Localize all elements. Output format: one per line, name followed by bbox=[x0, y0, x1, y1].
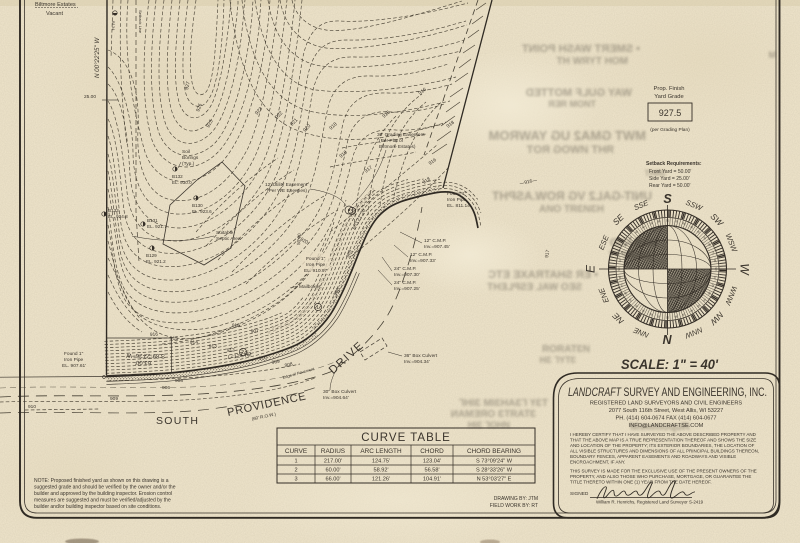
svg-text:Inv.=904.34': Inv.=904.34' bbox=[404, 359, 430, 365]
svg-text:Yard Grade: Yard Grade bbox=[654, 94, 684, 100]
svg-text:Found 1": Found 1" bbox=[306, 256, 326, 262]
svg-text:THAT THE ABOVE MAP IS A TRUE R: THAT THE ABOVE MAP IS A TRUE REPRESENTAT… bbox=[570, 438, 756, 443]
svg-text:B133: B133 bbox=[108, 208, 119, 213]
svg-text:Biltmore Estates: Biltmore Estates bbox=[35, 2, 76, 8]
svg-text:S 28°33'26" W: S 28°33'26" W bbox=[476, 468, 513, 474]
svg-text:EL. 907.61': EL. 907.61' bbox=[62, 363, 86, 369]
svg-text:Iron Pipe: Iron Pipe bbox=[64, 357, 84, 363]
svg-text:CHORD: CHORD bbox=[420, 448, 444, 455]
svg-text:William R. Henrichs, Registere: William R. Henrichs, Registered Land Sur… bbox=[596, 500, 704, 505]
svg-text:124.75': 124.75' bbox=[372, 459, 390, 465]
svg-text:909: 909 bbox=[110, 396, 118, 402]
svg-text:916: 916 bbox=[150, 332, 159, 338]
svg-text:BOUNDARY FENCES, APPARENT EASE: BOUNDARY FENCES, APPARENT EASEMENTS AND … bbox=[570, 454, 736, 459]
svg-text:THIS SURVEY IS MADE FOR THE EX: THIS SURVEY IS MADE FOR THE EXCLUSIVE US… bbox=[570, 469, 757, 474]
svg-text:EL. 930.0: EL. 930.0 bbox=[172, 180, 192, 185]
svg-text:Mailboxes: Mailboxes bbox=[299, 284, 321, 290]
svg-text:Found 1": Found 1" bbox=[64, 351, 84, 357]
svg-text:INFO@LANDCRAFTSE.COM: INFO@LANDCRAFTSE.COM bbox=[629, 423, 704, 429]
svg-text:N 00°22'25" W: N 00°22'25" W bbox=[94, 37, 101, 78]
svg-text:56.58': 56.58' bbox=[424, 468, 439, 474]
svg-text:EL. 910.97': EL. 910.97' bbox=[304, 268, 328, 274]
svg-text:Soil: Soil bbox=[182, 149, 190, 155]
svg-text:Setback Line: Setback Line bbox=[138, 10, 143, 34]
svg-text:30" Box Culvert: 30" Box Culvert bbox=[323, 389, 357, 395]
svg-text:12' Utility Easement: 12' Utility Easement bbox=[265, 182, 308, 188]
svg-text:1: 1 bbox=[316, 305, 319, 311]
svg-text:25.00: 25.00 bbox=[84, 94, 96, 100]
svg-text:Inv.=907.25': Inv.=907.25' bbox=[394, 286, 420, 292]
svg-text:908: 908 bbox=[175, 378, 183, 384]
svg-text:(per Grading Plan): (per Grading Plan) bbox=[650, 127, 690, 133]
svg-text:B131: B131 bbox=[147, 218, 158, 223]
svg-text:12" C.M.P.: 12" C.M.P. bbox=[424, 238, 446, 244]
svg-text:ARC LENGTH: ARC LENGTH bbox=[360, 448, 402, 455]
svg-text:B134: B134 bbox=[111, 21, 116, 31]
svg-text:• ER SHATRAXE ETC: • ER SHATRAXE ETC bbox=[488, 269, 598, 281]
svg-text:builder and/or building inspec: builder and/or building inspector based … bbox=[34, 504, 161, 510]
svg-text:(Typ.): (Typ.) bbox=[182, 161, 195, 167]
svg-text:NOTE: Proposed finished yard a: NOTE: Proposed finished yard as shown on… bbox=[34, 478, 169, 484]
svg-text:1: 1 bbox=[294, 459, 297, 465]
svg-text:907: 907 bbox=[251, 328, 260, 335]
svg-text:(Per Plat of: (Per Plat of bbox=[379, 138, 404, 144]
svg-text:Septic Area: Septic Area bbox=[216, 236, 241, 242]
svg-text:I HEREBY CERTIFY THAT I HAVE S: I HEREBY CERTIFY THAT I HAVE SURVEYED TH… bbox=[570, 432, 757, 437]
svg-text:EL. 811.14': EL. 811.14' bbox=[447, 203, 471, 209]
svg-text:CURVE: CURVE bbox=[285, 448, 307, 455]
svg-text:FIELD WORK BY: RT: FIELD WORK BY: RT bbox=[490, 503, 538, 509]
svg-text:104.91': 104.91' bbox=[423, 477, 441, 483]
svg-text:Vacant: Vacant bbox=[46, 11, 63, 17]
svg-text:12" C.M.P.: 12" C.M.P. bbox=[410, 252, 432, 258]
svg-text:PROPERTY, AND ALSO THOSE WHO P: PROPERTY, AND ALSO THOSE WHO PURCHASE, M… bbox=[570, 474, 751, 479]
svg-text:builder and approved by the bu: builder and approved by the building ins… bbox=[34, 491, 172, 497]
svg-text:EL. 921.7: EL. 921.7 bbox=[147, 224, 167, 229]
svg-text:CHORD BEARING: CHORD BEARING bbox=[467, 448, 521, 455]
svg-text:B130: B130 bbox=[192, 203, 203, 208]
svg-text:Inv.=907.33': Inv.=907.33' bbox=[410, 258, 436, 264]
svg-text:66.00': 66.00' bbox=[325, 477, 340, 483]
svg-text:ENCROACHMENT, IF ANY.: ENCROACHMENT, IF ANY. bbox=[570, 460, 625, 465]
svg-text:Found 1": Found 1" bbox=[447, 191, 467, 197]
svg-text:ЗТYГ ЗН: ЗТYГ ЗН bbox=[539, 355, 576, 365]
svg-text:2: 2 bbox=[294, 468, 297, 474]
svg-text:S 89°22'26" W: S 89°22'26" W bbox=[126, 352, 165, 359]
svg-text:B129: B129 bbox=[146, 253, 157, 258]
svg-text:Inv.=904.64': Inv.=904.64' bbox=[323, 395, 349, 401]
svg-text:SEO WAL ESPLEHT: SEO WAL ESPLEHT bbox=[487, 282, 582, 293]
svg-text:Inv.=907.45': Inv.=907.45' bbox=[424, 244, 450, 250]
svg-text:M: M bbox=[769, 50, 777, 60]
svg-text:916: 916 bbox=[232, 322, 241, 329]
svg-text:S 73°09'24" W: S 73°09'24" W bbox=[476, 459, 513, 465]
svg-text:SCALE: 1" = 40': SCALE: 1" = 40' bbox=[621, 356, 719, 372]
svg-text:EL. 921.2: EL. 921.2 bbox=[146, 259, 166, 264]
svg-text:WAY GULF MOTTED: WAY GULF MOTTED bbox=[526, 87, 632, 99]
svg-text:63.00': 63.00' bbox=[135, 359, 151, 365]
svg-text:Inv.=907.30': Inv.=907.30' bbox=[394, 272, 420, 278]
svg-text:217.00': 217.00' bbox=[324, 459, 342, 465]
svg-text:Biltmore Estates): Biltmore Estates) bbox=[379, 144, 416, 150]
svg-text:Suitable: Suitable bbox=[216, 230, 234, 236]
svg-text:915: 915 bbox=[170, 336, 179, 342]
svg-text:Iron Pipe: Iron Pipe bbox=[306, 262, 326, 268]
svg-text:3: 3 bbox=[350, 209, 353, 215]
svg-text:TИOM ЯER: TИOM ЯER bbox=[548, 99, 596, 109]
svg-text:ЯHT ИWOG ROТ: ЯHT ИWOG ROТ bbox=[526, 144, 614, 156]
svg-text:123.04': 123.04' bbox=[423, 459, 441, 465]
svg-text:ИЗТАЯOЯ: ИЗТАЯOЯ bbox=[542, 344, 590, 355]
svg-text:ТЗҮ ГЗАНЗІМ ЗІНГ: ТЗҮ ГЗАНЗІМ ЗІНГ bbox=[458, 398, 548, 409]
svg-text:927.5: 927.5 bbox=[659, 108, 682, 118]
svg-text:910: 910 bbox=[28, 404, 36, 410]
svg-text:W: W bbox=[738, 263, 752, 276]
svg-text:2077 South 116th Street, West: 2077 South 116th Street, West Allis, WI … bbox=[609, 408, 724, 414]
svg-text:EL. 923.6: EL. 923.6 bbox=[192, 209, 212, 214]
svg-text:SOUTH: SOUTH bbox=[156, 415, 199, 427]
svg-text:MOH TYRW HT: MOH TYRW HT bbox=[557, 56, 628, 67]
svg-text:Borings: Borings bbox=[182, 155, 199, 161]
svg-text:121.26': 121.26' bbox=[372, 477, 390, 483]
svg-text:Iron Pipe: Iron Pipe bbox=[447, 197, 467, 203]
svg-text:MWT GMA2 UG YAWROM: MWT GMA2 UG YAWROM bbox=[489, 128, 646, 143]
svg-text:• SMERT WASH POINT: • SMERT WASH POINT bbox=[522, 43, 640, 55]
svg-text:30' Grading Easement: 30' Grading Easement bbox=[377, 132, 425, 138]
svg-text:36" Box Culvert: 36" Box Culvert bbox=[404, 353, 438, 359]
svg-text:AND LOCATION OF THE PROPERTY;: AND LOCATION OF THE PROPERTY; ITS EXTERI… bbox=[570, 443, 755, 448]
svg-text:Side Yard = 25.00': Side Yard = 25.00' bbox=[649, 176, 690, 182]
svg-text:PH. (414) 604-0674 FAX (414): PH. (414) 604-0674 FAX (414) 604-0677 bbox=[615, 416, 716, 422]
svg-text:Prop. Finish: Prop. Finish bbox=[654, 86, 685, 92]
svg-text:3: 3 bbox=[294, 477, 297, 483]
svg-text:REGISTERED LAND SURVEYORS AND: REGISTERED LAND SURVEYORS AND CIVIL ENGI… bbox=[590, 401, 743, 407]
svg-text:58.92': 58.92' bbox=[373, 468, 388, 474]
svg-text:50.00: 50.00 bbox=[296, 233, 302, 245]
svg-text:SIGNED: SIGNED bbox=[570, 491, 589, 497]
svg-text:24" C.M.P.: 24" C.M.P. bbox=[394, 280, 416, 286]
svg-text:B132: B132 bbox=[172, 174, 183, 179]
svg-text:suggested grade and should be: suggested grade and should be verified b… bbox=[34, 485, 176, 491]
svg-text:Setback Requirements:: Setback Requirements: bbox=[646, 161, 702, 167]
svg-text:RADIUS: RADIUS bbox=[321, 448, 345, 455]
svg-text:914: 914 bbox=[190, 339, 199, 346]
svg-text:60.00': 60.00' bbox=[325, 468, 340, 474]
svg-text:measures are suggested and mus: measures are suggested and must be verif… bbox=[34, 498, 171, 504]
svg-text:CURVE TABLE: CURVE TABLE bbox=[361, 432, 451, 444]
svg-text:E: E bbox=[583, 264, 597, 273]
svg-text:TITLE THERETO WITHIN ONE (1) Y: TITLE THERETO WITHIN ONE (1) YEAR FROM T… bbox=[570, 480, 712, 485]
svg-text:НЗИЗЯТ ОИА: НЗИЗЯТ ОИА bbox=[539, 204, 604, 215]
svg-text:912: 912 bbox=[227, 347, 236, 354]
svg-text:N 53°03'27" E: N 53°03'27" E bbox=[477, 477, 512, 483]
svg-text:(Per WE Energies): (Per WE Energies) bbox=[267, 188, 307, 194]
svg-text:Rear Yard = 50.00': Rear Yard = 50.00' bbox=[649, 183, 691, 189]
svg-text:906: 906 bbox=[162, 385, 170, 391]
svg-text:LANDCRAFT SURVEY AND ENGINEERI: LANDCRAFT SURVEY AND ENGINEERING, INC. bbox=[568, 385, 767, 399]
svg-text:913: 913 bbox=[209, 343, 218, 350]
svg-text:24" C.M.P.: 24" C.M.P. bbox=[394, 266, 416, 272]
svg-text:S: S bbox=[663, 192, 672, 206]
svg-text:ЗТАЯТЗ ОREMAN: ЗТАЯТЗ ОREMAN bbox=[451, 409, 536, 420]
svg-text:910: 910 bbox=[258, 355, 267, 362]
svg-text:EL. 924.8: EL. 924.8 bbox=[108, 214, 128, 219]
svg-text:ALL VISIBLE STRUCTURES AND DIM: ALL VISIBLE STRUCTURES AND DIMENSIONS OF… bbox=[570, 449, 759, 454]
svg-text:DRAWING BY: JTM: DRAWING BY: JTM bbox=[494, 496, 538, 502]
svg-text:UNIT-GAL2 VG ROW.ASPHT: UNIT-GAL2 VG ROW.ASPHT bbox=[491, 189, 652, 203]
svg-text:N: N bbox=[662, 332, 672, 346]
svg-text:Front Yard = 50.00': Front Yard = 50.00' bbox=[649, 169, 691, 175]
